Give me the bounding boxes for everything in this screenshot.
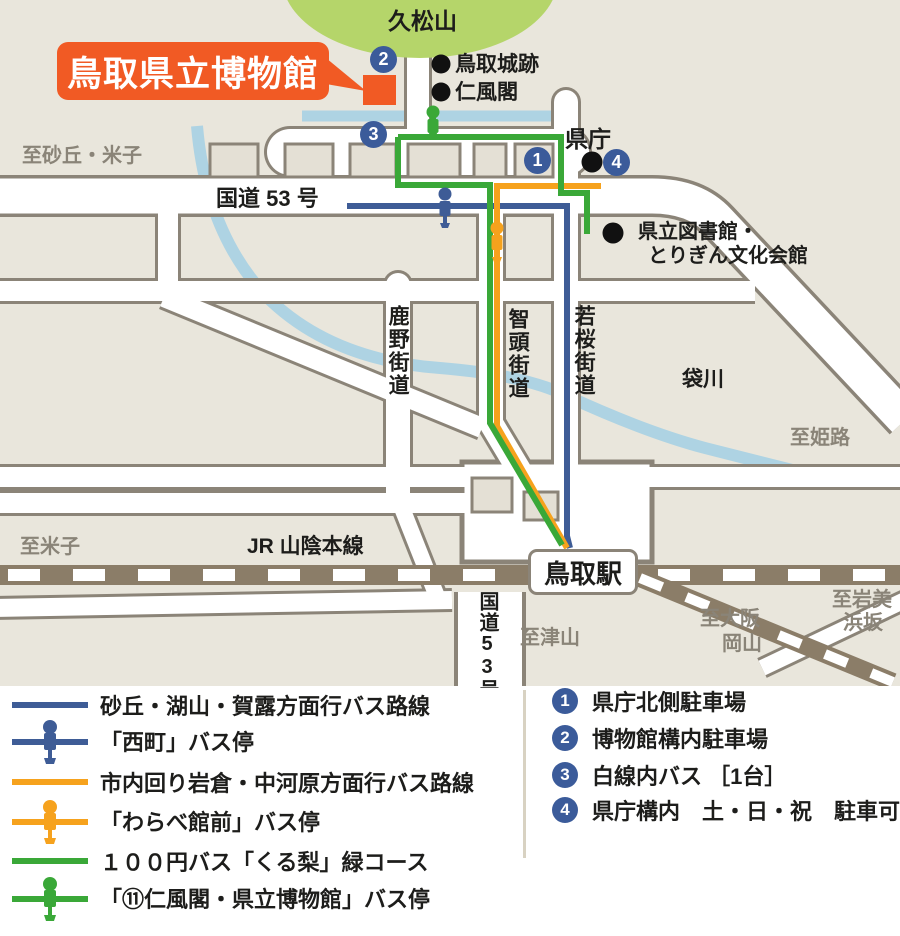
map-marker-3: 3: [360, 121, 387, 148]
blue-bus-stop-icon: [0, 717, 100, 765]
legend-divider: [523, 690, 526, 858]
direction-label-yonago: 至米子: [20, 536, 80, 559]
poi-dot-kencho: [582, 152, 603, 173]
poi-label-jinpukaku: 仁風閣: [455, 81, 518, 105]
legend-label: 「⑪仁風閣・県立博物館」バス停: [100, 882, 430, 914]
museum-title: 鳥取県立博物館: [57, 42, 329, 100]
poi-label-library-2: とりぎん文化会館: [648, 245, 808, 268]
legend-label: 市内回り岩倉・中河原方面行バス路線: [100, 766, 474, 798]
poi-label-kencho: 県庁: [565, 126, 611, 152]
map-marker-2: 2: [370, 46, 397, 73]
parking-marker-3: 3: [552, 762, 578, 788]
road-label-jr: JR 山陰本線: [247, 535, 364, 559]
legend-row-green-stop: 「⑪仁風閣・県立博物館」バス停: [0, 881, 430, 915]
poi-dot-library: [603, 223, 624, 244]
map-area: 久松山 鳥取県立博物館 鳥取城跡 仁風閣 県庁 県立図書館・ とりぎん文化会館 …: [0, 0, 900, 686]
direction-label-iwami-2: 浜坂: [843, 612, 883, 635]
legend-row-orange-stop: 「わらべ館前」バス停: [0, 804, 320, 838]
map-marker-4: 4: [603, 149, 630, 176]
road-label-route53: 国道 53 号: [216, 186, 319, 211]
direction-label-tsuyama: 至津山: [520, 627, 580, 650]
orange-bus-stop-icon: [0, 797, 100, 845]
legend-row-green-route: １００円バス「くる梨」緑コース: [0, 844, 428, 878]
legend-row-orange-route: 市内回り岩倉・中河原方面行バス路線: [0, 765, 474, 799]
access-map-page: 久松山 鳥取県立博物館 鳥取城跡 仁風閣 県庁 県立図書館・ とりぎん文化会館 …: [0, 0, 900, 936]
legend-parking-1: 1 県庁北側駐車場: [552, 685, 746, 717]
legend-label: 「わらべ館前」バス停: [100, 805, 320, 837]
legend-label: １００円バス「くる梨」緑コース: [100, 845, 428, 877]
legend-parking-4: 4 県庁構内 土・日・祝 駐車可: [552, 794, 900, 826]
street-label-chizu: 智頭街道: [505, 308, 529, 400]
legend-parking-3: 3 白線内バス ［1台］: [552, 759, 786, 791]
parking-marker-4: 4: [552, 797, 578, 823]
direction-label-osaka-2: 岡山: [722, 633, 762, 656]
direction-label-osaka-1: 至大阪: [700, 608, 760, 631]
orange-route-line-icon: [0, 774, 100, 790]
map-marker-1: 1: [524, 147, 551, 174]
parking-label: 県庁構内 土・日・祝 駐車可: [592, 794, 900, 826]
parking-marker-1: 1: [552, 688, 578, 714]
street-label-shikano: 鹿野街道: [385, 305, 409, 397]
road-label-route53-south: 国道53号: [475, 591, 498, 700]
parking-label: 県庁北側駐車場: [592, 685, 746, 717]
parking-label: 白線内バス ［1台］: [592, 759, 786, 791]
legend-row-blue-stop: 「西町」バス停: [0, 724, 254, 758]
museum-building-square: [363, 75, 396, 105]
direction-label-sakyu-yonago: 至砂丘・米子: [22, 145, 142, 168]
map-graphics: [0, 0, 900, 686]
parking-label: 博物館構内駐車場: [592, 722, 768, 754]
poi-label-castle: 鳥取城跡: [455, 53, 539, 77]
river-label-fukurogawa: 袋川: [682, 368, 724, 392]
poi-dot-castle: [432, 55, 451, 74]
poi-dot-jinpukaku: [432, 83, 451, 102]
legend-label: 砂丘・湖山・賀露方面行バス路線: [100, 689, 430, 721]
poi-label-library-1: 県立図書館・: [638, 221, 758, 244]
legend: 砂丘・湖山・賀露方面行バス路線 「西町」バス停 市内回り岩倉・中河原方面行バス路…: [0, 688, 900, 936]
blue-route-line-icon: [0, 697, 100, 713]
parking-marker-2: 2: [552, 725, 578, 751]
street-label-wakasa: 若桜街道: [571, 305, 595, 397]
direction-label-iwami-1: 至岩美: [832, 589, 892, 612]
station-label: 鳥取駅: [544, 554, 622, 591]
direction-label-himeji: 至姫路: [790, 427, 850, 450]
green-route-line-icon: [0, 853, 100, 869]
legend-label: 「西町」バス停: [100, 725, 254, 757]
station-box: 鳥取駅: [528, 549, 638, 595]
green-bus-stop-icon: [0, 874, 100, 922]
mountain-label: 久松山: [388, 8, 457, 34]
bus-stop-icon-nishimachi: [439, 188, 452, 229]
legend-parking-2: 2 博物館構内駐車場: [552, 722, 768, 754]
